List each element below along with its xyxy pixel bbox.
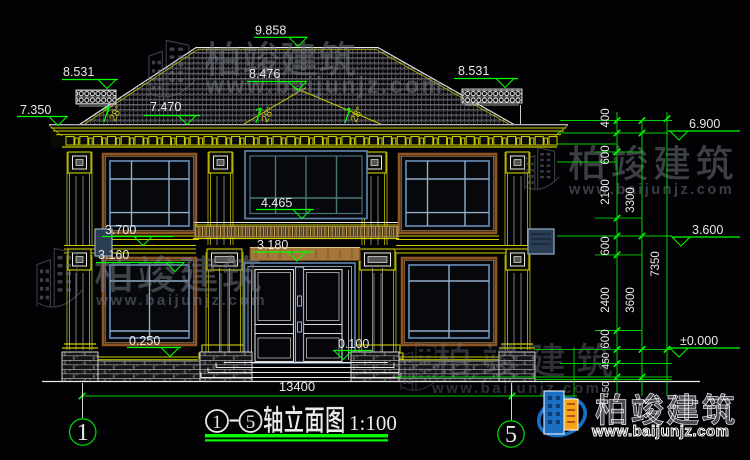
svg-text:7.470: 7.470 [150,100,181,114]
svg-text:5: 5 [505,422,517,448]
svg-text:3.180: 3.180 [257,238,288,252]
svg-text:1: 1 [77,420,89,446]
svg-text:1:100: 1:100 [349,411,397,435]
svg-text:7350: 7350 [650,251,662,277]
svg-text:0.100: 0.100 [338,337,369,351]
svg-text:3.160: 3.160 [98,248,129,262]
svg-text:8.531: 8.531 [458,64,489,78]
svg-text:2400: 2400 [600,287,612,313]
svg-text:3300: 3300 [625,187,637,213]
svg-text:3.600: 3.600 [692,223,723,237]
svg-text:7.350: 7.350 [20,103,51,117]
svg-text:600: 600 [600,236,612,255]
svg-text:www.baijunjz.com: www.baijunjz.com [205,72,445,98]
svg-text:8.476: 8.476 [249,67,280,81]
svg-text:4.465: 4.465 [261,196,292,210]
svg-text:9.858: 9.858 [255,24,286,38]
svg-text:www.baijunjz.com: www.baijunjz.com [95,292,267,309]
svg-text:www.baijunjz.com: www.baijunjz.com [568,182,734,198]
svg-text:13400: 13400 [279,379,315,394]
svg-text:3.700: 3.700 [105,223,136,237]
svg-text:600: 600 [600,145,612,164]
svg-text:400: 400 [600,108,612,127]
svg-text:www.baijunjz.com: www.baijunjz.com [591,423,729,440]
svg-text:0.250: 0.250 [129,334,160,348]
svg-text:2100: 2100 [600,179,612,205]
svg-text:3600: 3600 [625,287,637,313]
svg-text:±0.000: ±0.000 [680,334,718,348]
svg-text:450: 450 [601,352,612,369]
svg-text:5: 5 [246,412,256,433]
svg-text:www.baijunjz.com: www.baijunjz.com [431,380,601,397]
svg-text:1: 1 [212,412,222,433]
svg-text:6.900: 6.900 [689,117,720,131]
svg-text:600: 600 [600,329,612,348]
svg-text:8.531: 8.531 [63,65,94,79]
